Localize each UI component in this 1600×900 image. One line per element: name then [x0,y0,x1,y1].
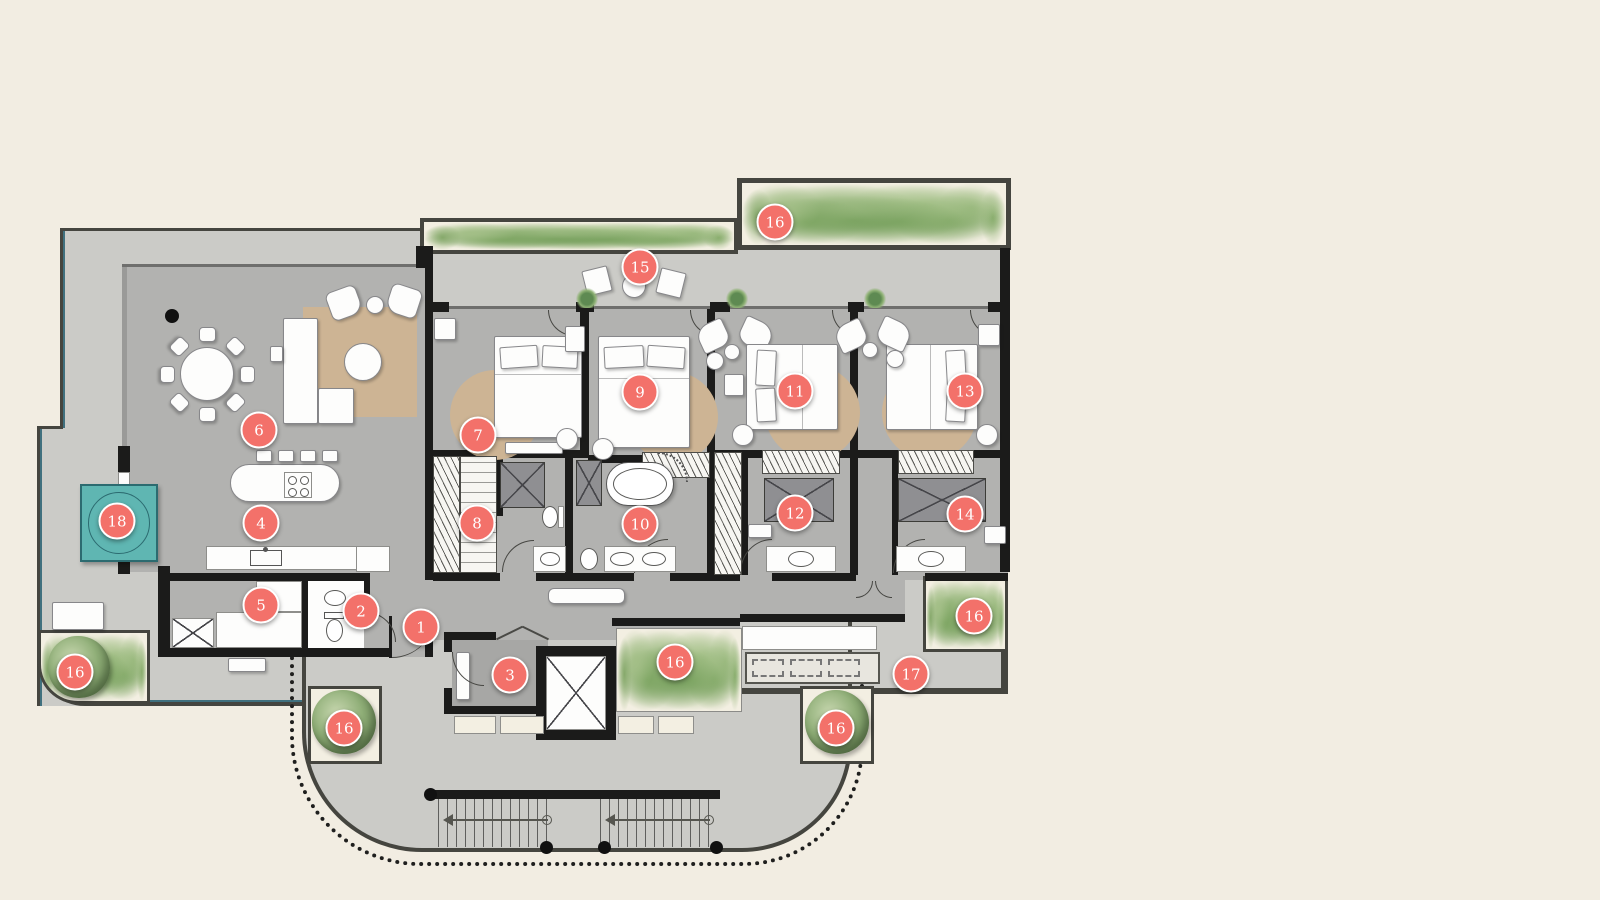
stairs-ring [542,815,552,825]
stairs-wall-bar [430,790,720,799]
plant-pot [576,288,598,308]
wardrobe-column [714,452,742,575]
bar-stool [256,450,272,462]
nightstand [434,318,456,340]
armchair-side-table [366,296,384,314]
pillow [755,350,777,387]
wall-kitchen-divider [163,573,310,581]
wall-living-south [158,648,392,657]
wall-bath-bottom [433,573,500,581]
cooktop-burner [288,488,297,497]
column-dot [424,788,437,801]
terrace-bench [228,658,266,672]
kitchen-tall-unit [356,546,390,572]
dining-chair [160,366,175,383]
terrace17-bottom-edge [740,688,1008,694]
nightstand [565,326,585,352]
pouf [592,438,614,460]
shower [576,460,602,506]
wall [118,446,130,472]
laundry-cabinet [256,581,302,612]
terrace-left-upper [60,228,128,434]
floor-plan-page: { "figure": { "type": "architectural-flo… [0,0,1600,900]
wall-pillar [433,302,449,312]
nightstand [978,324,1000,346]
bar-stool [278,450,294,462]
bench-cushion [752,659,784,677]
sink-basin [610,552,634,566]
duvet-fold [802,345,803,429]
niche [454,716,496,734]
stairs-arrow-head [443,814,453,826]
shower [898,478,986,522]
pillow [945,387,967,422]
plant-pot [864,288,886,308]
pillow [755,387,777,422]
duvet-fold [599,378,689,379]
dining-chair [240,366,255,383]
dining-chair [199,327,216,342]
wall-living-top-glass [122,264,433,267]
kitchen-sink [250,550,282,566]
coffee-table [344,343,382,381]
column-dot [540,841,553,854]
corner-table [724,344,740,360]
niche [618,716,654,734]
wall-living-east [425,264,433,580]
bench-cushion [790,659,822,677]
bath-bench [984,526,1006,544]
planter-top-left-strip [420,218,738,254]
shelf-column [460,456,497,573]
elevator-frame [536,730,616,740]
jacuzzi-circle [88,492,150,554]
column-dot [165,309,179,323]
sink-basin [788,551,814,567]
stairs-arrow [614,819,710,821]
toilet-tank [558,506,564,528]
tree-bottom-left [48,636,110,698]
cooktop-burner [300,488,309,497]
tree-right [805,690,869,754]
kitchen-faucet [263,547,268,552]
pillow [646,345,685,370]
washing-machine [172,618,214,648]
wardrobe-column [433,456,460,573]
toilet-bowl [542,506,558,528]
stairs-flight [438,799,552,847]
bed-side-table [724,374,744,396]
sofa-back [283,318,318,424]
elevator-frame [536,646,616,656]
wall-bath8-east [565,456,573,575]
bench-cushion [828,659,860,677]
powder-sink [324,590,346,606]
wall-powder-top [302,573,370,581]
wardrobe [762,450,840,474]
balcony-table [622,274,646,298]
dining-chair [199,407,216,422]
stairs-ring [704,815,714,825]
elevator-cab [546,656,606,730]
niche [500,716,544,734]
dining-table [180,347,234,401]
niche [658,716,694,734]
shower [764,478,834,522]
bar-stool [322,450,338,462]
sofa-chaise [318,388,354,424]
hall-console [548,588,625,604]
tree-left [312,690,376,754]
column-dot [598,841,611,854]
planter-right-box [923,576,1008,652]
toilet-tank [324,612,344,619]
toilet-bowl [580,548,598,570]
stairs-arrow [452,819,548,821]
laundry-counter [216,612,302,648]
wall-bath-bottom [536,573,634,581]
duvet-fold [495,374,581,375]
floor-plan: 1234567891011121314151616161616161718 [0,0,1600,900]
pouf [556,428,578,450]
bed-bench [505,442,563,454]
terrace17-niche [742,626,877,650]
plant-pot [726,288,748,308]
bath-bench [748,524,772,538]
sofa-side-table [270,346,283,362]
planter-lobby-box [616,628,742,712]
corner-table [862,342,878,358]
pouf [732,424,754,446]
wall-bath-bottom [772,573,856,581]
pillow [499,345,538,370]
stairs-flight [600,799,714,847]
cooktop-burner [288,476,297,485]
sink-basin [642,552,666,566]
terrace-bench [52,602,104,630]
wall-hall-bottom-east [740,614,905,622]
wall-living-left-glass [122,267,127,450]
pouf [976,424,998,446]
planter-top-right-box [737,178,1011,250]
wall-bath-bottom [925,573,1008,581]
pillow [603,345,644,369]
column-dot [710,841,723,854]
sink-basin [540,552,560,566]
elevator-frame [606,646,616,740]
duvet-fold [930,345,931,429]
terrace-step-line [37,426,63,429]
pouf [706,352,724,370]
shower [500,462,545,508]
window-east-hatched [1000,356,1010,414]
pillow [945,350,967,387]
stairs-arrow-head [605,814,615,826]
toilet-bowl [326,619,343,642]
wall-hall-bottom-mid [612,618,740,626]
wardrobe [898,450,974,474]
terrace-balcony [425,248,1008,310]
wall-corner-chunk [416,246,433,268]
bar-stool [300,450,316,462]
pouf [886,350,904,368]
wall-foyer-left [444,632,452,652]
cooktop-burner [300,476,309,485]
sink-basin [918,551,944,567]
